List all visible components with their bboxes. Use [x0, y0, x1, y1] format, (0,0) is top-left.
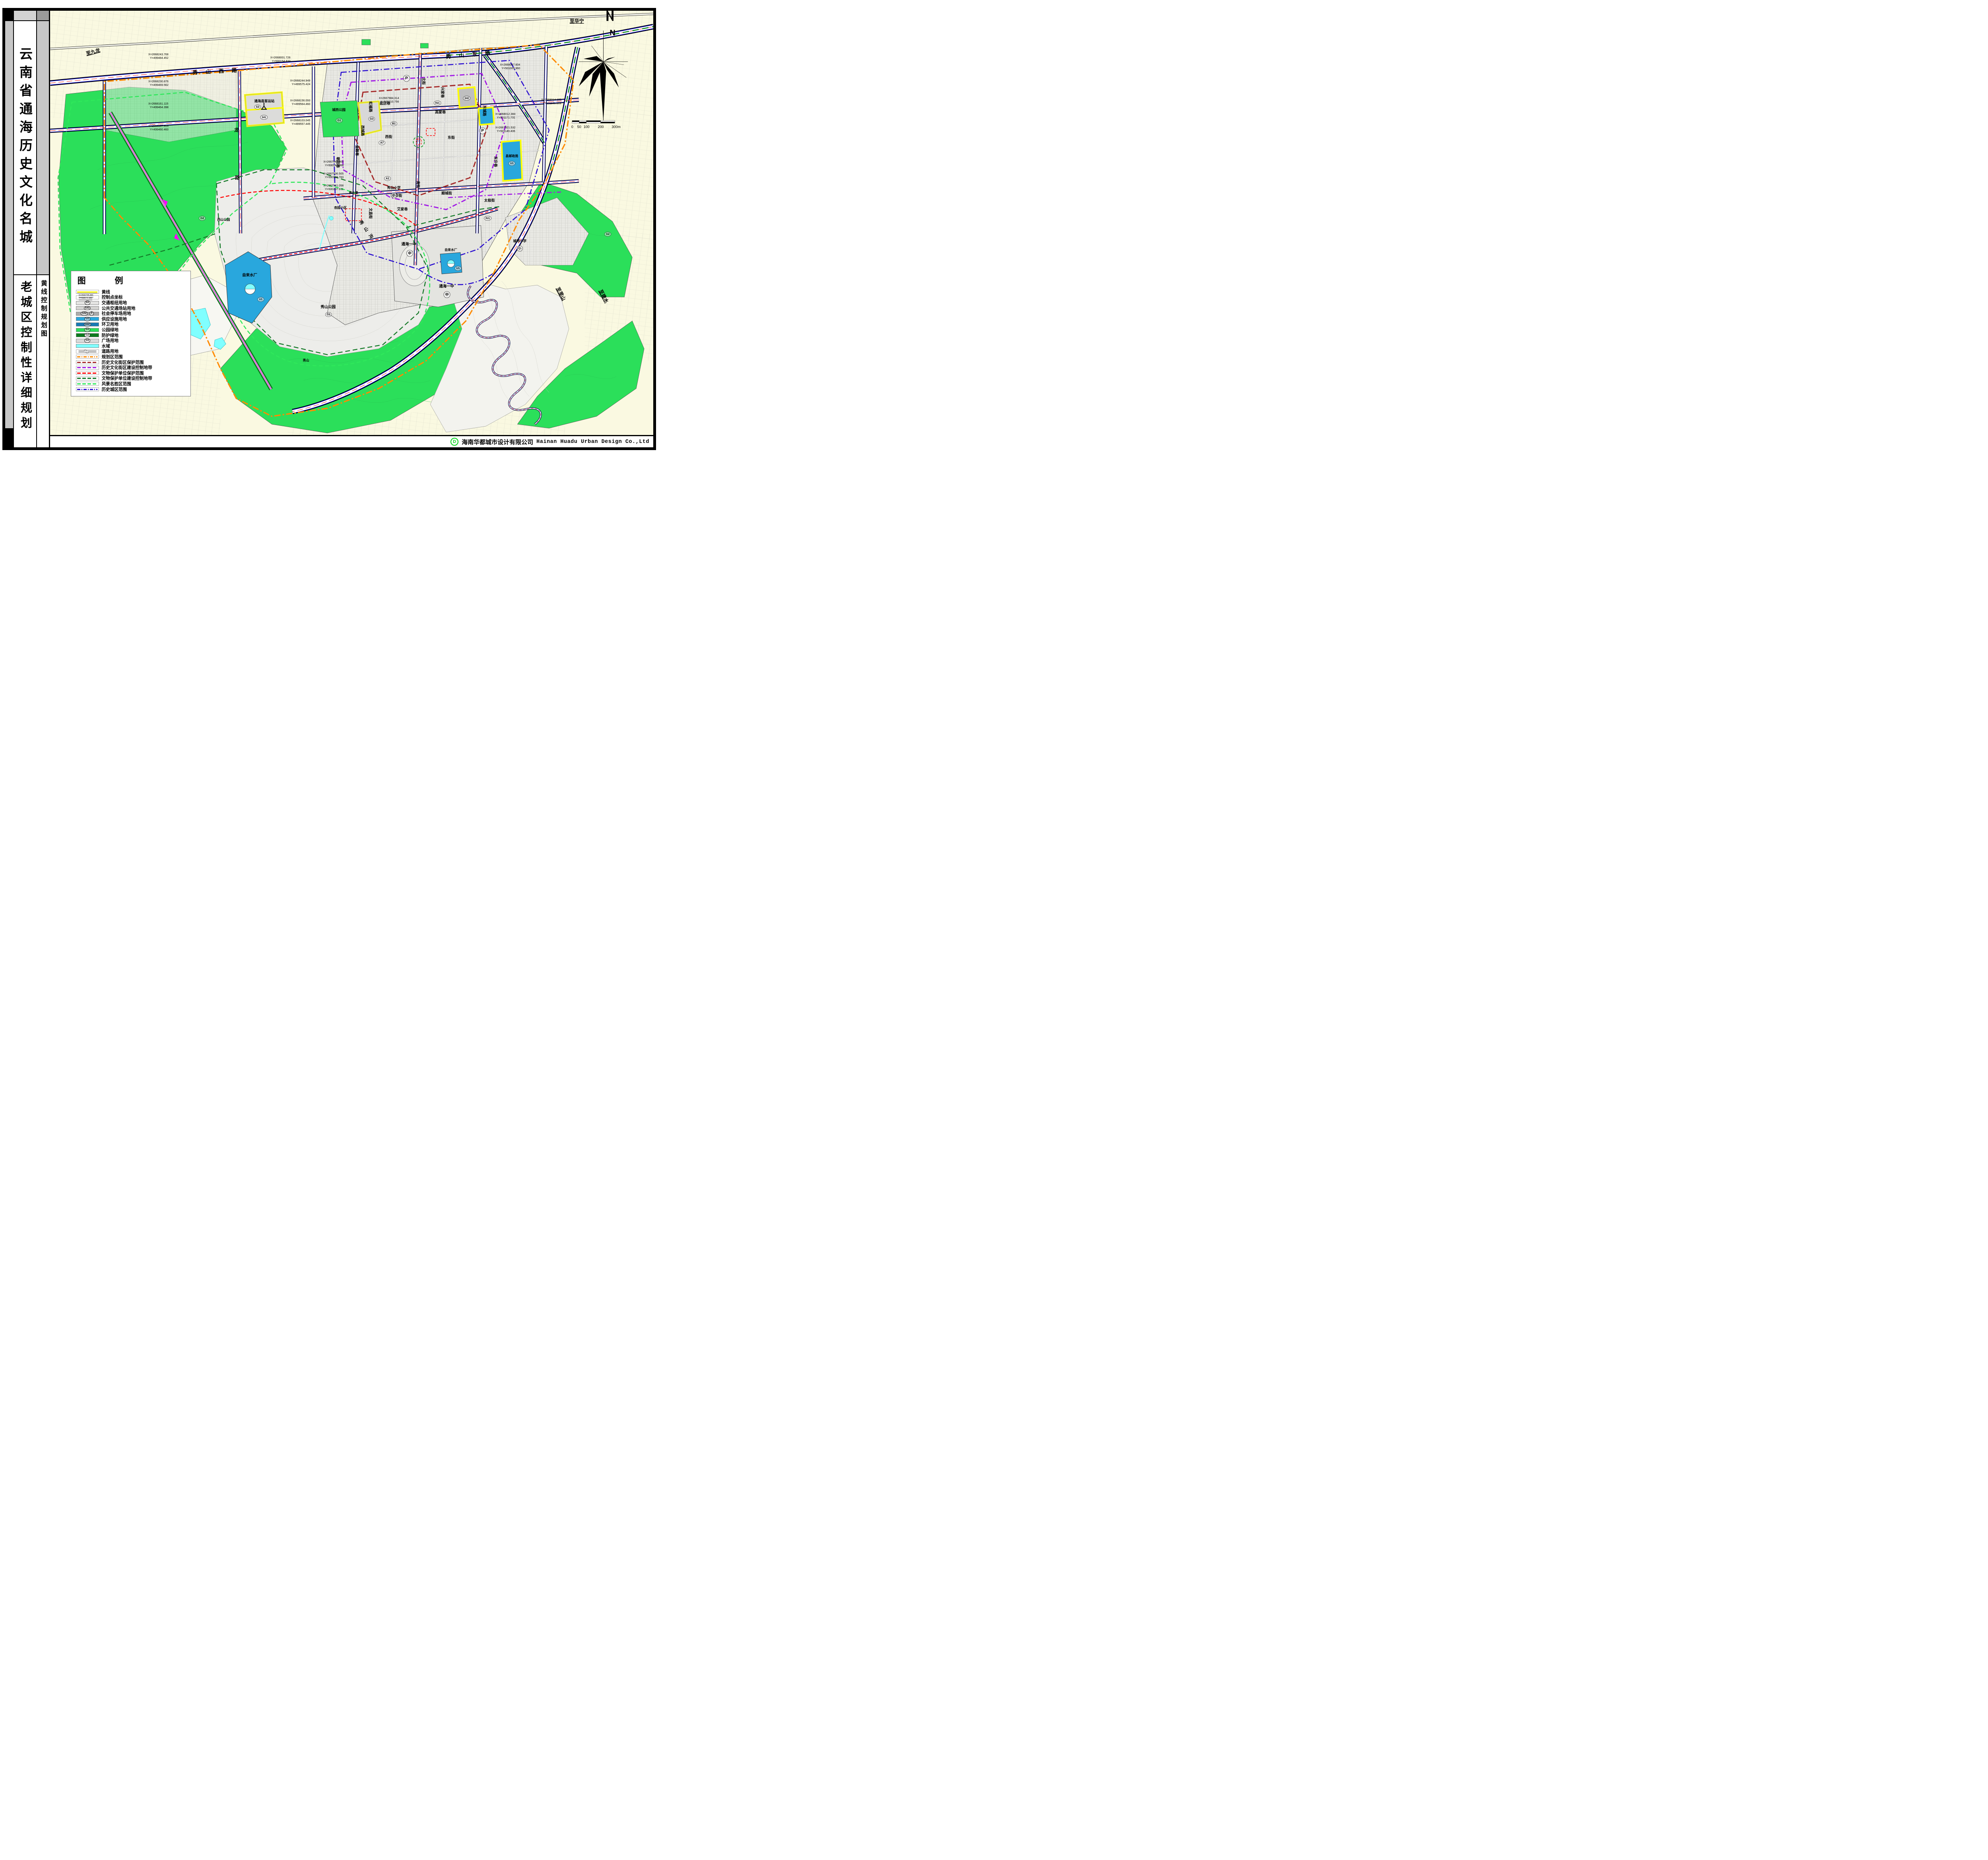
coord-x: X=2667984.314	[379, 97, 399, 100]
fill-swatch: G1	[76, 328, 99, 332]
map-area: N 0 50 100 200 300m 至九龙 至华宁 至里山 至建水	[50, 11, 653, 435]
place-label: 县邮政局	[506, 154, 518, 158]
coord-y: Y=501171.731	[497, 116, 515, 119]
legend-item: 历史文化街区建设控制地带	[76, 365, 186, 370]
street-label: 东城路	[483, 105, 487, 116]
coord-y: Y=499464.398	[150, 106, 169, 109]
badge-zone-code: G2	[606, 233, 610, 236]
scale-tick: 300m	[612, 125, 620, 129]
coord-y: Y=500210.756	[381, 100, 399, 103]
legend-item: 历史城区范围	[76, 387, 186, 392]
parcel-waterworks-east	[440, 252, 462, 274]
parcel-bus-station	[245, 92, 284, 126]
street-label: 西城路	[361, 125, 365, 136]
scale-tick: 50	[577, 125, 581, 129]
coord-y: Y=501009.960	[502, 67, 520, 70]
coord-x: X=2668014.185	[541, 98, 561, 101]
street-label: 顺城街	[441, 191, 452, 195]
coord-y: Y=500154.833	[272, 60, 291, 63]
legend-title: 图 例	[78, 274, 186, 286]
place-label: 通海一中	[439, 284, 454, 289]
coord-y: Y=499557.445	[292, 122, 311, 126]
road-swatch	[76, 349, 99, 353]
north-label: N	[610, 29, 615, 37]
place-label: 秀山公园	[320, 305, 336, 309]
badge-parking-icon: P	[481, 128, 484, 133]
company-name-cn: 海南华都城市设计有限公司	[462, 438, 533, 446]
badge-zone-code: A7	[380, 142, 384, 144]
title-column-header	[14, 11, 36, 21]
legend: 图 例 黄线 X=2666795.881Y=498570.389控制点坐标 S3…	[71, 271, 191, 396]
street-label: 太极街	[484, 198, 495, 202]
fill-swatch: S41	[76, 306, 99, 310]
street-label: 高家巷	[435, 110, 446, 114]
badge-zone-code: S41	[262, 116, 266, 119]
coord-x: X=2668067.604	[500, 63, 520, 66]
badge-zone-code: S42	[465, 97, 469, 100]
coord-y: Y=499484.452	[150, 56, 169, 60]
project-title: 云南省通海历史文化名城	[19, 47, 32, 248]
sidebar-title-column: 云南省通海历史文化名城 老城区控制性详细规划	[14, 11, 37, 447]
place-label: 商业楼	[349, 190, 358, 194]
coord-x: X=2668244.949	[290, 79, 311, 82]
scale-tick: 100	[584, 125, 590, 129]
place-label: 通海县客运站	[254, 99, 275, 103]
street-label: 东街	[448, 135, 455, 140]
place-label: 秀山小学	[387, 186, 401, 190]
project-subtitle: 老城区控制性详细规划	[19, 281, 31, 432]
coord-y: Y=500198.783	[325, 176, 344, 179]
street-label: 文昌街	[369, 208, 373, 219]
coord-y: Y=499469.562	[150, 83, 169, 87]
footer-bar: D 海南华都城市设计有限公司 Hainan Huadu Urban Design…	[50, 435, 653, 447]
legend-item: 规划区范围	[76, 354, 186, 359]
legend-item: S42 P社会停车场用地	[76, 311, 186, 316]
yellow-line-swatch	[76, 290, 99, 294]
legend-item: U22环卫用地	[76, 322, 186, 327]
badge-school-icon: 小	[518, 247, 521, 250]
legend-item: S41公共交通场站用地	[76, 306, 186, 311]
place-label: 杏园小区	[334, 206, 347, 210]
street-label: 东升巷	[494, 156, 498, 167]
fill-swatch: U22	[76, 322, 99, 326]
coord-x: X=2667946.000	[323, 160, 344, 163]
fill-swatch	[76, 344, 99, 348]
badge-zone-code: U1	[259, 298, 262, 301]
legend-item: U1供应设施用地	[76, 316, 186, 322]
street-label: 兴家巷	[441, 87, 445, 98]
road-name: 龙	[234, 127, 239, 133]
coord-x: X=2668243.768	[148, 53, 169, 56]
road-name: 路	[235, 175, 240, 181]
school-campus	[392, 225, 484, 307]
badge-zone-code: U1	[510, 162, 514, 165]
coord-x: X=2668012.384	[495, 113, 516, 116]
dash-swatch	[76, 382, 99, 386]
content: N 0 50 100 200 300m 至九龙 至华宁 至里山 至建水	[50, 11, 653, 447]
coord-y: Y=499460.460	[150, 128, 169, 131]
legend-item: G3广场用地	[76, 338, 186, 343]
legend-item: X=2666795.881Y=498570.389控制点坐标	[76, 295, 186, 300]
place-label: 城郊小学	[513, 239, 526, 243]
fill-swatch: U1	[76, 317, 99, 321]
drawing-frame: 云南省通海历史文化名城 老城区控制性详细规划 黄线控制规划图	[2, 8, 656, 450]
coord-x: X=2668156.093	[290, 99, 311, 102]
plan-sheet: 云南省通海历史文化名城 老城区控制性详细规划 黄线控制规划图	[0, 0, 658, 465]
street-label: 金融巷	[355, 145, 359, 156]
badge-zone-code: G3	[370, 118, 373, 120]
street-label: 南街	[416, 181, 420, 188]
legend-item: 水域	[76, 344, 186, 349]
dash-swatch	[76, 360, 99, 364]
coord-y: Y=501181.109	[543, 102, 561, 105]
badge-school-icon: 中	[408, 251, 412, 255]
coord-x: X=2668107.913	[148, 124, 169, 128]
legend-item: G2防护绿地	[76, 333, 186, 338]
badge-zone-code: R21	[485, 217, 490, 220]
badge-zone-code: A1	[386, 177, 389, 180]
badge-zone-code: G2	[200, 217, 204, 220]
scale-tick: 200	[598, 125, 604, 129]
badge-zone-code: S3	[256, 106, 260, 109]
coord-x: X=2668001.726	[270, 56, 291, 59]
title-sidebar: 云南省通海历史文化名城 老城区控制性详细规划 黄线控制规划图	[5, 11, 50, 447]
coord-y: Y=500147.068	[325, 164, 344, 167]
street-label: 西街	[385, 134, 392, 139]
coord-x: X=2667921.532	[495, 126, 516, 129]
badge-school-icon: 中	[445, 292, 449, 297]
dash-swatch	[76, 366, 99, 370]
badge-zone-code: G1	[327, 313, 330, 316]
legend-item: S3交通枢纽用地	[76, 300, 186, 305]
street-label: 虹福路	[369, 101, 373, 113]
company-name-en: Hainan Huadu Urban Design Co.,Ltd	[536, 439, 649, 445]
coord-x: X=2668230.876	[148, 80, 169, 83]
sidebar-bottom-block	[5, 429, 13, 447]
coord-swatch: X=2666795.881Y=498570.389	[76, 295, 99, 299]
legend-item: 文物保护单位保护范围	[76, 371, 186, 376]
dash-swatch	[76, 377, 99, 381]
legend-item: G1公园绿地	[76, 327, 186, 332]
sheet-title: 黄线控制规划图	[40, 280, 46, 447]
badge-zone-code: G1	[337, 119, 341, 122]
pond-xingyuan	[329, 216, 333, 220]
dash-swatch	[76, 371, 99, 375]
legend-item: 道路用地	[76, 349, 186, 354]
place-label: 西山公园	[217, 217, 230, 221]
scale-tick: 0	[571, 125, 573, 129]
place-label: 自来水厂	[445, 248, 457, 252]
sidebar-strip	[5, 11, 14, 447]
dash-swatch	[76, 387, 99, 391]
legend-item: 风景名胜区范围	[76, 381, 186, 386]
coord-y: Y=501149.406	[497, 130, 515, 133]
badge-parking-icon: P	[405, 76, 408, 80]
sidebar-corner-block	[5, 11, 13, 21]
street-label: 艾家巷	[397, 207, 408, 211]
fill-swatch: G3	[76, 339, 99, 343]
coord-x: X=2668161.115	[148, 102, 168, 105]
sheet-column-spacer	[37, 21, 49, 275]
fill-swatch: G2	[76, 333, 99, 337]
edge-label: 至华宁	[570, 18, 584, 24]
badge-zone-code: B1	[392, 122, 396, 125]
sidebar-strip-body	[5, 21, 13, 429]
legend-item: 黄线	[76, 289, 186, 295]
place-label: 秀山	[303, 358, 309, 362]
street-label: 北街	[421, 78, 426, 85]
legend-item: 文物保护单位建设控制地带	[76, 376, 186, 381]
badge-zone-code: U1	[456, 267, 460, 270]
place-label: 自来水厂	[242, 273, 257, 278]
coord-y: Y=499564.460	[292, 103, 311, 106]
dash-swatch	[76, 355, 99, 359]
coord-y: Y=499575.424	[292, 83, 311, 86]
coord-x: X=2667936.505	[323, 172, 344, 175]
place-label: 通海一中	[402, 242, 417, 247]
sheet-column-header	[37, 11, 49, 21]
legend-item: 历史文化街区保护范围	[76, 360, 186, 365]
parcel-post-office	[502, 140, 522, 181]
fill-swatch: S3	[76, 301, 99, 305]
coord-x: X=2667941.058	[323, 184, 344, 187]
badge-zone-code: R21	[435, 102, 440, 105]
place-label: 城西公园	[332, 108, 346, 112]
company-logo-icon: D	[450, 438, 458, 446]
sidebar-sheet-column: 黄线控制规划图	[37, 11, 50, 447]
coord-y: Y=500207.911	[325, 188, 343, 191]
fill-swatch: S42 P	[76, 312, 99, 316]
badge-school-icon: 小	[392, 193, 396, 197]
coord-x: X=2668103.045	[290, 119, 311, 122]
